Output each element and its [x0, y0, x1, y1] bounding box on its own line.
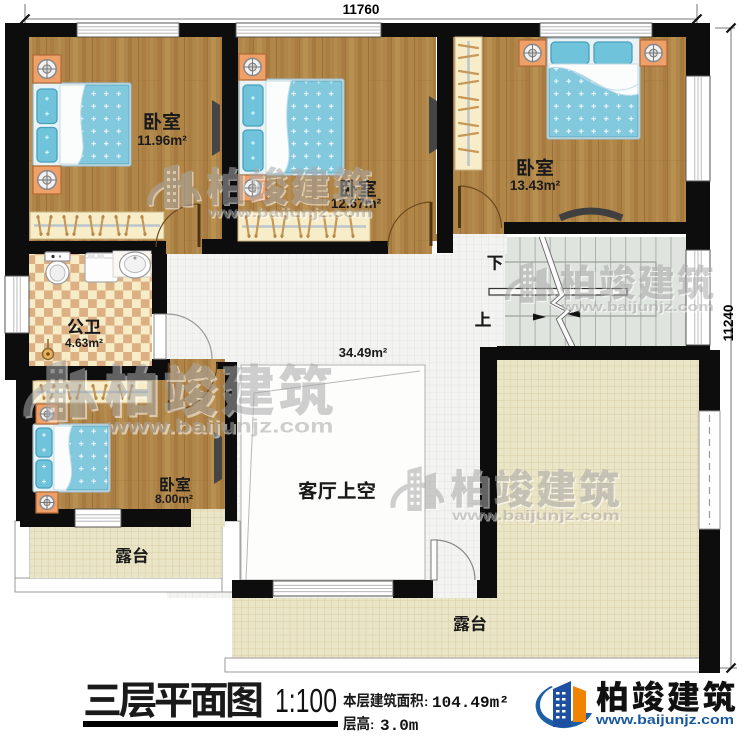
svg-text:11760: 11760 — [343, 2, 380, 17]
svg-text:3.0m: 3.0m — [380, 717, 419, 735]
svg-text:11.96m²: 11.96m² — [137, 133, 187, 148]
svg-text:www.baijunjz.com: www.baijunjz.com — [595, 712, 734, 727]
svg-text:34.49m²: 34.49m² — [339, 345, 388, 360]
svg-text:8.00m²: 8.00m² — [155, 492, 193, 506]
svg-text:13.43m²: 13.43m² — [510, 178, 561, 193]
svg-text:11240: 11240 — [721, 305, 736, 342]
svg-text:104.49m²: 104.49m² — [432, 694, 509, 712]
svg-text:1:100: 1:100 — [275, 682, 337, 719]
svg-text::: : — [424, 694, 428, 709]
svg-text::: : — [370, 717, 374, 732]
svg-text:4.63m²: 4.63m² — [65, 336, 103, 350]
